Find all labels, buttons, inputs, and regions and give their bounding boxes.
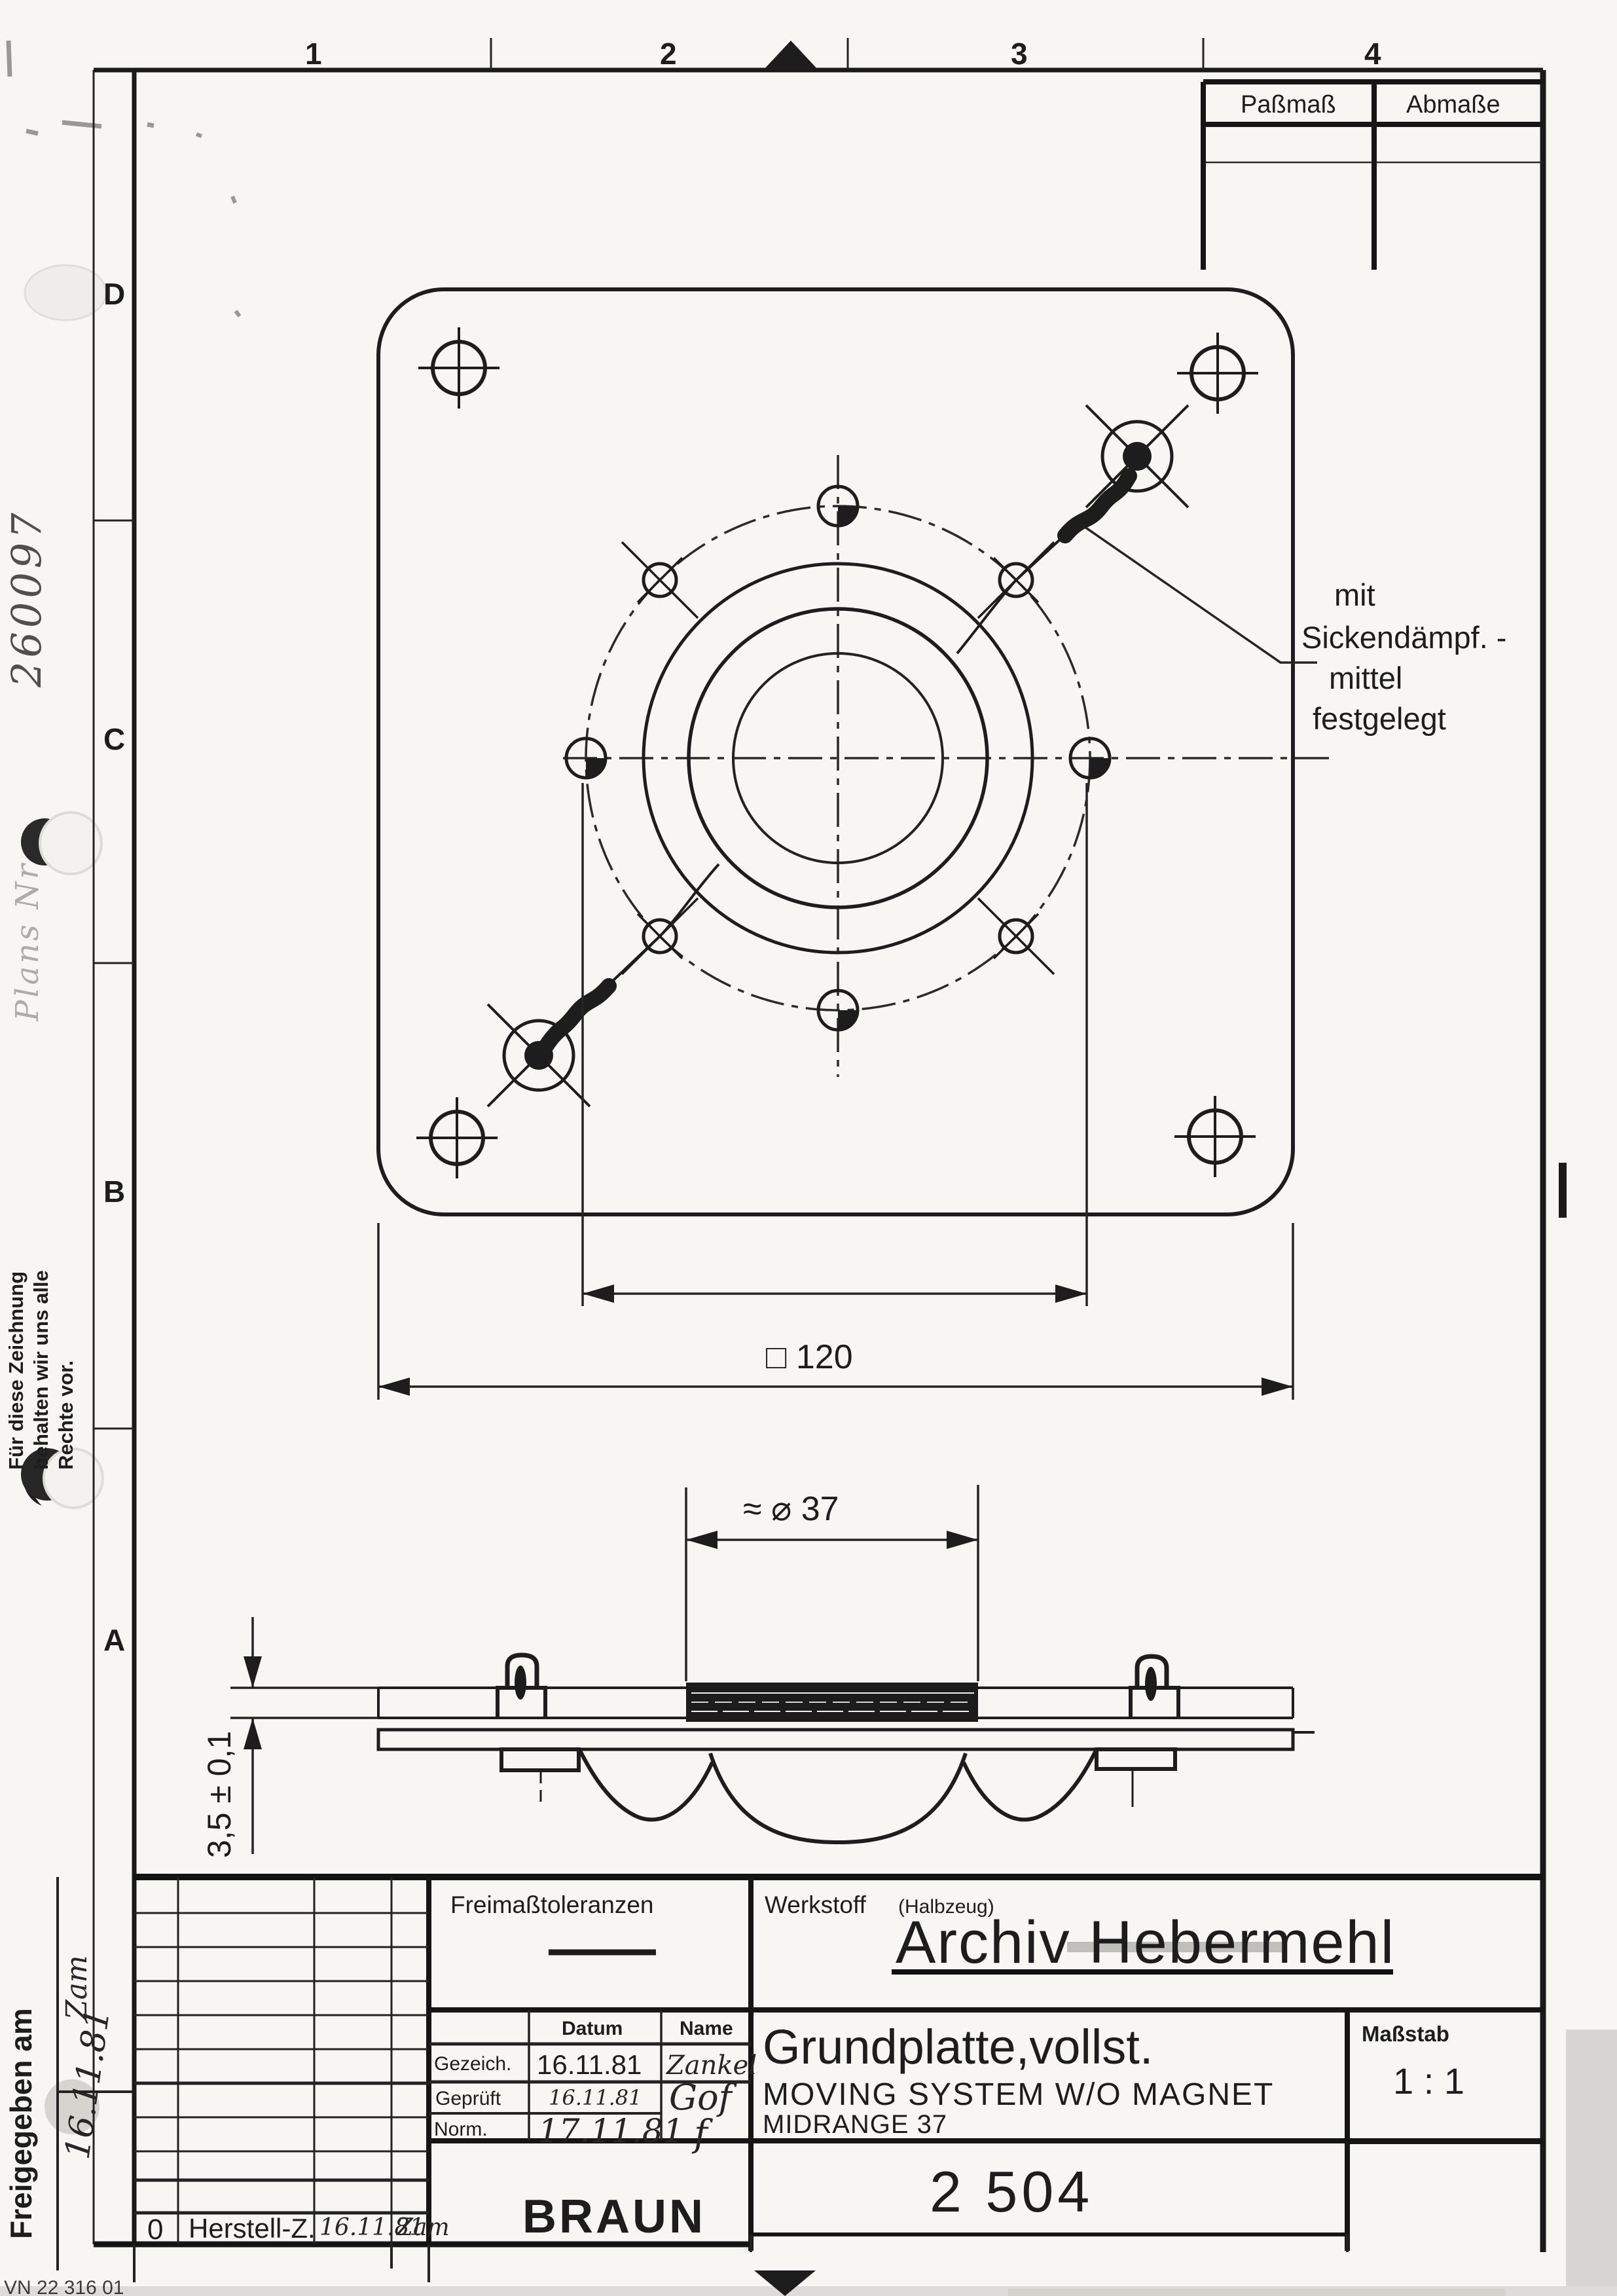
zone-number-2: 2: [660, 37, 677, 71]
section-diaphragm-arcs: [579, 1749, 1097, 1842]
revision-row-0: 0 Herstell-Z. 16.11.81 Zam: [147, 2213, 450, 2246]
datum-header: Datum: [562, 2018, 623, 2039]
dimension-bolt-circle: [583, 783, 1087, 1306]
section-terminal-right: [1097, 1656, 1178, 1807]
gezeich-date: 16.11.81: [537, 2049, 642, 2080]
dim-coil-label: ≈ ⌀ 37: [743, 1490, 839, 1528]
zone-letter-a: A: [103, 1623, 125, 1657]
title-block: 0 Herstell-Z. 16.11.81 Zam Freimaßtolera…: [58, 1877, 1543, 2282]
gepruft-date: 16.11.81: [549, 2085, 642, 2110]
part-title-line1: Grundplatte,vollst.: [763, 2020, 1153, 2074]
margin-annotations: 260097 Plans Nr Für diese Zeichnung beha…: [3, 509, 124, 2296]
annotation-line3: mittel: [1329, 661, 1402, 695]
zone-number-1: 1: [305, 37, 322, 71]
released-label: Freigegeben am: [4, 2008, 38, 2239]
technical-drawing-canvas: 1 2 3 4 D C B A 260097 Plans Nr Für dies…: [0, 0, 1617, 2296]
drawing-sheet: 1 2 3 4 D C B A 260097 Plans Nr Für dies…: [0, 0, 1617, 2296]
registration-triangle-top: [763, 41, 818, 70]
copyright-line2: behalten wir uns alle: [29, 1270, 52, 1470]
copyright-note: Für diese Zeichnung behalten wir uns all…: [5, 1270, 77, 1470]
zone-number-3: 3: [1011, 37, 1028, 71]
fit-dimension-table: Paßmaß Abmaße: [1203, 82, 1543, 270]
plans-nr-stamp: Plans Nr: [9, 862, 46, 1022]
scale-label: Maßstab: [1362, 2022, 1449, 2046]
zone-labels: 1 2 3 4 D C B A: [103, 37, 1381, 1657]
revision-grid: [58, 1877, 429, 2249]
revision-index: 0: [147, 2214, 163, 2246]
gepruft-label: Geprüft: [435, 2088, 501, 2109]
brand-logo: BRAUN: [522, 2191, 706, 2243]
dimension-coil-diameter: ≈ ⌀ 37: [686, 1485, 978, 1681]
norm-label: Norm.: [434, 2119, 488, 2140]
archive-stamp-text: Archiv Hebermehl: [896, 1909, 1395, 1976]
material-label: Werkstoff: [765, 1891, 867, 1918]
copyright-line3: Rechte vor.: [54, 1360, 77, 1470]
tolerances-label: Freimaßtoleranzen: [450, 1891, 654, 1918]
zone-letter-d: D: [103, 277, 125, 311]
revision-text: Herstell-Z.: [189, 2213, 316, 2244]
section-view: ≈ ⌀ 37 3,5 ± 0,1: [201, 1485, 1315, 1858]
part-title-line2: MOVING SYSTEM W/O MAGNET: [763, 2077, 1274, 2112]
part-title: Grundplatte,vollst. MOVING SYSTEM W/O MA…: [763, 2020, 1274, 2139]
scale-value: 1 : 1: [1393, 2060, 1464, 2102]
zone-letter-b: B: [103, 1175, 125, 1209]
dim-thickness-label: 3,5 ± 0,1: [201, 1731, 238, 1858]
norm-date: 17.11.81: [538, 2112, 684, 2150]
zone-number-4: 4: [1364, 37, 1381, 71]
top-view-base-plate: [378, 289, 1335, 1214]
part-number: 2 504: [930, 2159, 1093, 2224]
form-number: VN 22 316 01: [4, 2277, 124, 2296]
zone-letter-c: C: [103, 722, 125, 756]
dim-square-label: □ 120: [766, 1338, 853, 1376]
section-plate-plank: [378, 1730, 1315, 1749]
part-title-line3: MIDRANGE 37: [763, 2110, 947, 2139]
dimension-thickness: 3,5 ± 0,1: [201, 1617, 393, 1858]
copyright-line1: Für diese Zeichnung: [5, 1271, 27, 1470]
annotation-line1: mit: [1334, 577, 1375, 612]
name-header: Name: [680, 2018, 733, 2039]
punch-hole: [40, 812, 101, 874]
gezeich-label: Gezeich.: [434, 2053, 511, 2075]
fit-col2-header: Abmaße: [1406, 91, 1500, 118]
section-voice-coil: [686, 1683, 978, 1722]
norm-signature: f: [691, 2113, 714, 2155]
handwritten-plan-number: 260097: [3, 509, 50, 688]
fit-col1-header: Paßmaß: [1241, 91, 1336, 118]
signature-table: Datum Name Gezeich. 16.11.81 Zankel Gepr…: [429, 2010, 757, 2155]
dimension-square-120: □ 120: [378, 1223, 1293, 1400]
archive-stamp: Archiv Hebermehl: [892, 1909, 1395, 1976]
annotation-line4: festgelegt: [1313, 701, 1446, 736]
revision-sign: Zam: [396, 2214, 450, 2241]
annotation-line2: Sickendämpf. -: [1301, 620, 1506, 655]
